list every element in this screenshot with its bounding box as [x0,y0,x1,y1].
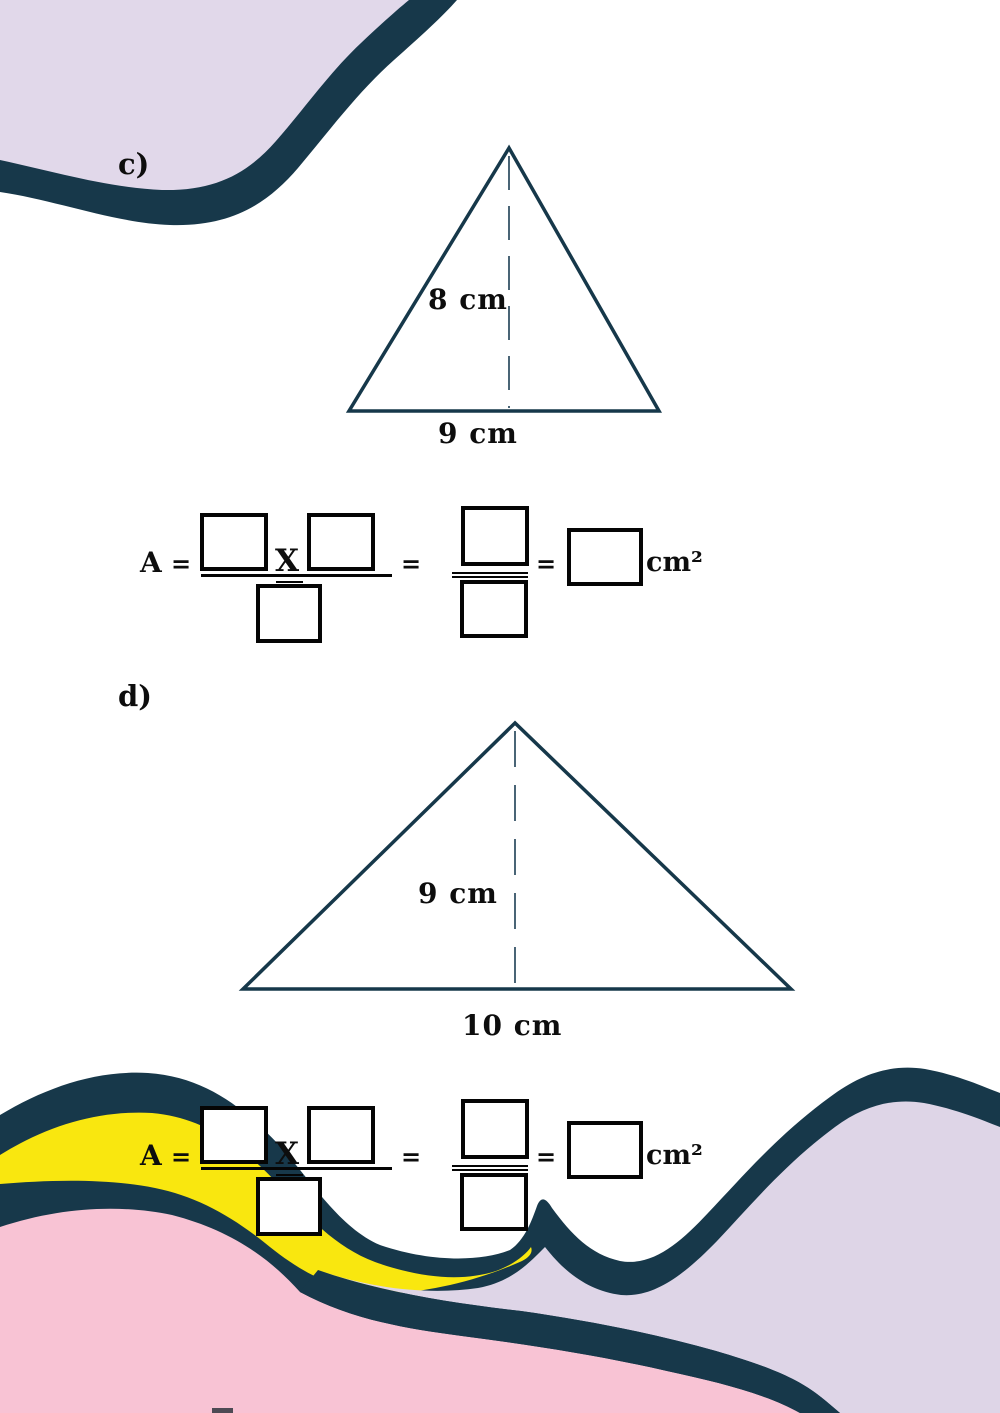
d-multiply-symbol: X [275,1139,299,1170]
c-equals-1: = [171,552,191,576]
d-answer-box-value1[interactable] [200,1106,268,1164]
d-multiply-underline [276,1174,303,1176]
d-answer-box-value2[interactable] [307,1106,375,1164]
d-area-symbol: A [140,1142,162,1170]
d-answer-box-divisor[interactable] [256,1177,322,1236]
c-unit-label: cm² [646,549,703,576]
c-multiply-symbol: X [275,546,299,577]
triangle-d-base-label: 10 cm [462,1012,562,1040]
worksheet-page: c) 8 cm 9 cm A = X = = cm² d) 9 cm 10 cm… [0,0,1000,1413]
c-equals-2: = [401,552,421,576]
d-equals-2: = [401,1145,421,1169]
problem-c-label: c) [118,150,149,179]
c-answer-box-denominator[interactable] [460,580,528,638]
d-equals-1: = [171,1145,191,1169]
c-answer-box-value1[interactable] [200,513,268,571]
d-fraction-line-2b [452,1169,528,1171]
triangle-c [349,148,659,411]
d-answer-box-numerator[interactable] [461,1099,529,1159]
c-answer-box-result[interactable] [567,528,643,586]
d-unit-label: cm² [646,1142,703,1169]
c-multiply-underline [276,581,303,583]
c-equals-3: = [536,552,556,576]
c-area-symbol: A [140,549,162,577]
c-answer-box-divisor[interactable] [256,584,322,643]
triangle-d [243,723,791,989]
d-equals-3: = [536,1145,556,1169]
d-answer-box-result[interactable] [567,1121,643,1179]
d-fraction-line-2a [452,1165,528,1167]
triangle-c-base-label: 9 cm [438,420,518,448]
c-fraction-line-2b [452,576,528,578]
c-answer-box-value2[interactable] [307,513,375,571]
d-answer-box-denominator[interactable] [460,1173,528,1231]
c-fraction-line-2a [452,572,528,574]
bottom-edge-sliver [212,1408,233,1413]
triangle-d-height-label: 9 cm [418,880,498,908]
c-answer-box-numerator[interactable] [461,506,529,566]
problem-d-label: d) [118,682,152,711]
triangle-c-height-label: 8 cm [428,286,508,314]
